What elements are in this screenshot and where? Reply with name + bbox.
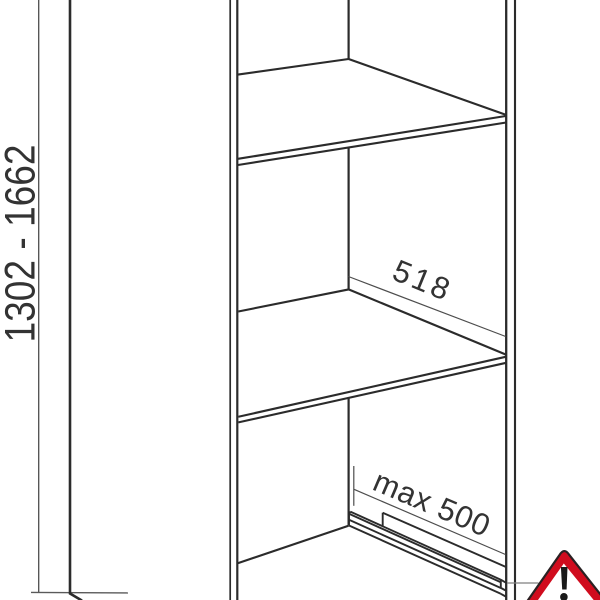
svg-text:1302 - 1662: 1302 - 1662 <box>0 145 44 343</box>
